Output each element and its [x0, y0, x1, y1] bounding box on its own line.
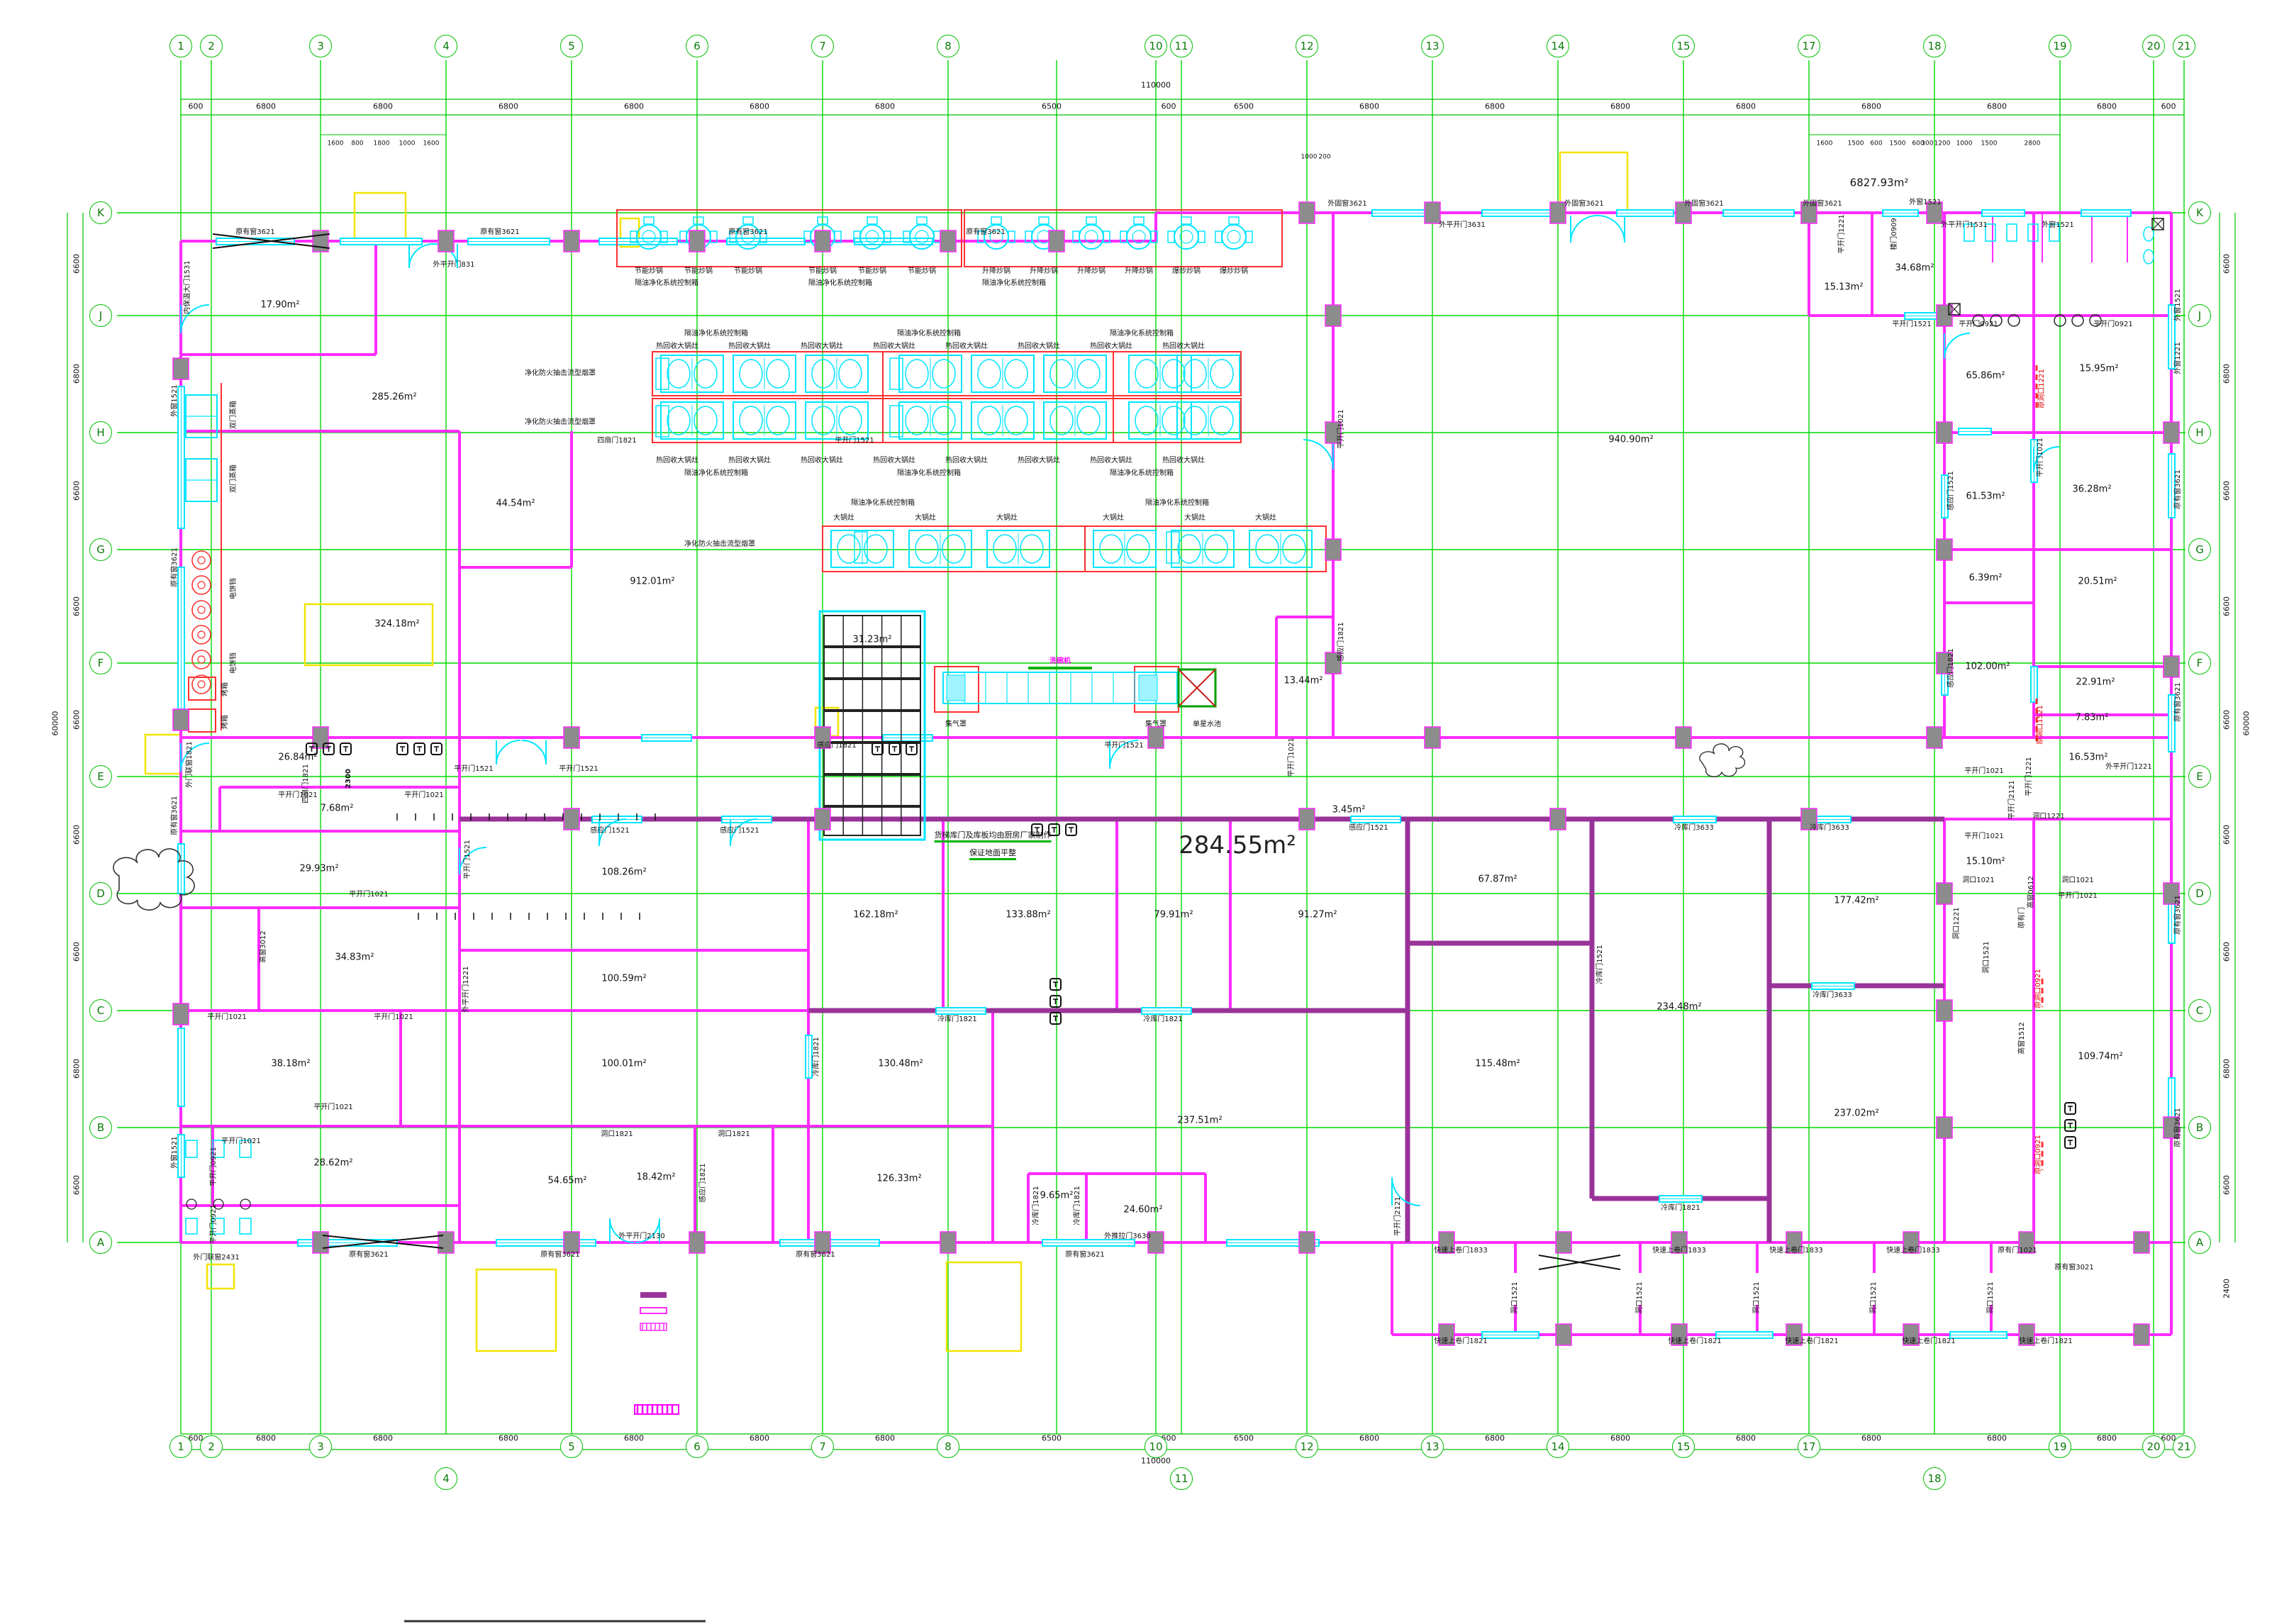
equipment-label: 隔油净化系统控制箱 [1110, 470, 1174, 477]
dim-label: 6800 [2223, 1059, 2231, 1079]
door-window-label: 冷库门1821 [1661, 1205, 1700, 1212]
door-window-label: 平开门1521 [559, 766, 598, 773]
dim-label: 1600 [423, 141, 440, 148]
dim-label: 6600 [2223, 596, 2231, 616]
equipment-label: 双门蒸箱 [230, 401, 238, 429]
grid-bubble: C [89, 999, 112, 1022]
door-window-label: 原有窗3021 [2054, 1264, 2093, 1272]
dim-label: 6800 [750, 103, 769, 111]
equipment-label: 热回收大锅灶 [1162, 457, 1205, 465]
door-window-label: 洞口1521 [1988, 1281, 1995, 1313]
room-area-label: 6.39m² [1969, 574, 2003, 583]
door-window-label: 平开门1521 [464, 840, 472, 879]
dim-label: 6800 [1861, 1435, 1881, 1442]
door-window-label: 外固窗3621 [1327, 201, 1366, 208]
dim-label: 6600 [73, 825, 81, 845]
room-area-label: 162.18m² [853, 911, 898, 920]
room-area-label: 15.95m² [2079, 365, 2118, 374]
door-window-label: 平开门1521 [1104, 743, 1143, 750]
equipment-label: 节能炒锅 [808, 268, 837, 275]
room-area-label: 130.48m² [878, 1060, 923, 1069]
grid-bubble: 3 [309, 35, 332, 57]
door-window-label: 原有窗3621 [480, 229, 519, 236]
door-window-label: 高窗3012 [260, 930, 267, 962]
door-window-label: 平开门1021 [374, 1014, 413, 1021]
room-area-label: 177.42m² [1834, 896, 1878, 906]
room-area-label: 9.65m² [1040, 1191, 1074, 1201]
door-window-label: 外窗1521 [2175, 289, 2182, 321]
room-area-label: 28.62m² [313, 1159, 352, 1168]
door-window-label: 平开门0921 [211, 1147, 218, 1186]
dim-label: 600 [1162, 103, 1176, 111]
door-window-label: 平开门1521 [1892, 321, 1931, 328]
grid-bubble: 2 [200, 35, 223, 57]
room-area-label: 912.01m² [630, 577, 674, 586]
door-window-label: 平开门1021 [1338, 409, 1345, 448]
room-area-label: 34.83m² [335, 953, 374, 962]
door-window-label: 感应门1521 [590, 828, 629, 835]
room-area-label: 15.10m² [1966, 857, 2005, 867]
grid-bubble: 14 [1547, 1435, 1569, 1458]
equipment-label: 热回收大锅灶 [728, 457, 771, 465]
door-window-label: 外门联窗2431 [193, 1255, 239, 1262]
room-area-label: 234.48m² [1656, 1003, 1701, 1012]
grid-bubble: 5 [560, 35, 583, 57]
kitchen-note-line1: 货梯库门及库板均由厨房厂家制作 [935, 831, 1052, 842]
door-window-label: 高窗0612 [2028, 876, 2035, 908]
room-area-label: 237.51m² [1177, 1116, 1222, 1125]
door-window-label: 平开门1021 [278, 792, 317, 799]
room-area-label: 61.53m² [1966, 492, 2005, 501]
door-window-label: 外窗1521 [172, 1136, 179, 1168]
door-window-label: 平开门1021 [349, 891, 388, 899]
door-window-label: 平开门0921 [1959, 321, 1998, 328]
dim-label: 6800 [1485, 103, 1505, 111]
equipment-label: 升降炒锅 [982, 268, 1010, 275]
grid-bubble: 8 [937, 1435, 959, 1458]
door-window-label: 洞口1521 [1754, 1281, 1761, 1313]
floorplan-canvas: 284.55m² 6827.93m² 货梯库门及库板均由厨房厂家制作 保证地面平… [0, 0, 2272, 1624]
door-window-label: 快速上卷门1821 [2019, 1338, 2072, 1345]
grid-bubble: 19 [2049, 1435, 2071, 1458]
grid-bubble: 11 [1170, 35, 1193, 57]
door-window-label: 原有窗3621 [2175, 895, 2182, 934]
door-window-label: 洞口1821 [601, 1131, 633, 1138]
room-area-label: 34.68m² [1895, 264, 1934, 273]
equipment-label: 升降炒锅 [1125, 268, 1153, 275]
dim-label: 6800 [373, 103, 393, 111]
door-window-label: 原有窗3621 [235, 229, 274, 236]
grid-bubble: 2 [200, 1435, 223, 1458]
kitchen-note-line2: 保证地面平整 [969, 849, 1016, 860]
dim-label: 6800 [1861, 103, 1881, 111]
grid-bubble: 17 [1798, 1435, 1820, 1458]
door-window-label: 原有窗3621 [2175, 682, 2182, 721]
door-window-label: 外固窗3621 [1684, 201, 1723, 208]
dim-label: 6600 [2223, 481, 2231, 501]
dim-label: 1200 [1934, 141, 1951, 148]
equipment-label: 隔油净化系统控制箱 [897, 330, 961, 338]
dim-label: 6800 [1610, 1435, 1630, 1442]
door-window-label: 外平开门3631 [1439, 222, 1485, 229]
room-area-label: 67.87m² [1478, 875, 1517, 884]
equipment-label: 爆炒炒锅 [1172, 268, 1201, 275]
room-area-label: 115.48m² [1475, 1060, 1520, 1069]
equipment-label: 大锅灶 [1184, 515, 1205, 522]
room-area-label: 79.91m² [1154, 911, 1193, 920]
door-window-label: 冷库门3633 [1810, 825, 1849, 832]
room-area-label: 22.91m² [2076, 678, 2115, 687]
corridor-dim: 2300 [345, 769, 352, 789]
room-area-label: 31.23m² [852, 635, 891, 645]
equipment-label: 热回收大锅灶 [945, 343, 988, 350]
dim-label: 600 [1870, 141, 1882, 148]
room-area-label: 940.90m² [1608, 435, 1653, 445]
dim-label: 6600 [2223, 710, 2231, 730]
equipment-label: 隔油净化系统控制箱 [635, 280, 698, 287]
room-area-label: 7.83m² [2076, 713, 2109, 723]
equipment-label: 热回收大锅灶 [873, 343, 915, 350]
equipment-label: 烤箱 [222, 715, 229, 729]
room-area-label: 36.28m² [2072, 485, 2111, 494]
dim-label: 600 [2161, 103, 2176, 111]
equipment-label: 电饼铛 [230, 578, 238, 599]
grid-bubble: H [2188, 421, 2211, 444]
dim-label: 6500 [1042, 1435, 1062, 1442]
grid-bubble: D [89, 882, 112, 905]
dim-label: 6800 [2097, 103, 2117, 111]
equipment-label: 隔油净化系统控制箱 [851, 500, 915, 507]
equipment-label: 节能炒锅 [908, 268, 936, 275]
door-window-label: 平开门1021 [221, 1138, 260, 1145]
equipment-label: 大锅灶 [1103, 515, 1124, 522]
equipment-label: 隔油净化系统控制箱 [1145, 500, 1209, 507]
dim-label: 6800 [1987, 103, 2007, 111]
grid-bubble: G [2188, 538, 2211, 561]
room-area-label: 15.13m² [1824, 283, 1863, 292]
room-area-label: 102.00m² [1965, 662, 2010, 672]
door-window-label: 洞口1521 [1512, 1281, 1519, 1313]
dim-label: 6800 [373, 1435, 393, 1442]
equipment-label: 爆炒炒锅 [1220, 268, 1248, 275]
door-window-label: 平开门1021 [1964, 833, 2003, 840]
equipment-label: 单星水池 [1193, 721, 1221, 728]
grid-bubble: J [2188, 304, 2211, 327]
door-window-label: 外固窗3621 [1564, 201, 1603, 208]
door-window-label: 平开门0921 [211, 1204, 218, 1243]
room-area-label: 133.88m² [1006, 911, 1050, 920]
grid-bubble: D [2188, 882, 2211, 905]
dim-label: 300 [1921, 141, 1933, 148]
door-window-label: 外平开门1221 [463, 966, 470, 1012]
room-area-label: 91.27m² [1298, 911, 1337, 920]
dim-label: 6600 [2223, 942, 2231, 962]
door-window-label: 原有窗3621 [728, 229, 767, 236]
room-area-label: 7.68m² [321, 804, 354, 813]
grid-bubble: 4 [435, 1467, 457, 1490]
dim-label: 1000 [1301, 155, 1318, 161]
door-window-label: 外门联窗1821 [186, 741, 194, 787]
room-area-label: 29.93m² [299, 864, 338, 874]
equipment-label: 热回收大锅灶 [1018, 343, 1060, 350]
dim-label: 6800 [875, 1435, 895, 1442]
dim-label: 1000 [399, 141, 416, 148]
dim-label: 6500 [1042, 103, 1062, 111]
door-window-label: 快速上卷门1833 [1652, 1247, 1705, 1255]
door-window-label: 平开门1521 [454, 766, 493, 773]
grid-bubble: 13 [1421, 1435, 1444, 1458]
equipment-label: 热回收大锅灶 [801, 343, 843, 350]
grid-bubble: 1 [169, 1435, 192, 1458]
dim-label: 6600 [2223, 1175, 2231, 1195]
dim-label: 6800 [1736, 103, 1756, 111]
dim-label: 6800 [1359, 1435, 1379, 1442]
door-window-label: 四扇门1821 [597, 438, 636, 445]
door-window-label: 洞口1221 [1954, 907, 1961, 939]
equipment-label: 热回收大锅灶 [656, 457, 698, 465]
grid-bubble: J [89, 304, 112, 327]
dim-label: 6800 [256, 1435, 276, 1442]
equipment-label: 隔油净化系统控制箱 [684, 470, 748, 477]
dim-label: 2400 [2223, 1279, 2231, 1298]
door-window-label: 原洞口1221 [2039, 369, 2046, 408]
walls [181, 213, 2171, 1335]
grid-bubble: K [2188, 201, 2211, 224]
door-window-label: 外窗1521 [172, 384, 179, 416]
grid-bubble: 12 [1296, 1435, 1318, 1458]
dim-label: 1000 [1956, 141, 1973, 148]
grid-bubble: 1 [169, 35, 192, 57]
grid-bubble: 7 [811, 1435, 834, 1458]
grid-bubble: F [89, 652, 112, 674]
room-area-label: 13.44m² [1283, 677, 1322, 686]
door-window-label: 冷库门1821 [1033, 1186, 1040, 1225]
dim-label: 6600 [73, 254, 81, 274]
grid-bubble: 21 [2173, 35, 2195, 57]
door-window-label: 原有窗3621 [1065, 1252, 1104, 1259]
dim-label: 6600 [2223, 825, 2231, 845]
overall-dim-bottom: 110000 [1141, 1457, 1171, 1465]
door-window-label: 原有窗3621 [796, 1252, 835, 1259]
dim-label: 6600 [73, 942, 81, 962]
dim-label: 6800 [2223, 364, 2231, 384]
grid-bubble: 17 [1798, 35, 1820, 57]
door-window-label: 平开门0921 [2093, 321, 2132, 328]
equipment-label: 大锅灶 [833, 515, 854, 522]
dim-label: 6800 [1359, 103, 1379, 111]
equipment-label: 热回收大锅灶 [1090, 457, 1132, 465]
door-window-label: 原有窗3621 [2175, 469, 2182, 508]
door-window-label: 外窗1521 [1909, 199, 1941, 206]
room-area-label: 100.59m² [601, 974, 646, 984]
main-area-label: 284.55m² [1179, 833, 1296, 857]
grid-bubble: 8 [937, 35, 959, 57]
grid-bubble: 13 [1421, 35, 1444, 57]
equipment-label: 节能炒锅 [858, 268, 886, 275]
room-area-label: 54.65m² [547, 1177, 586, 1186]
door-window-label: 冷库门1821 [937, 1016, 976, 1023]
door-window-label: 快速上卷门1821 [1785, 1338, 1838, 1345]
door-window-label: 外窗1521 [2042, 222, 2073, 229]
door-window-label: 平开门2121 [2009, 780, 2016, 819]
grid-bubble: 11 [1170, 1467, 1193, 1490]
equipment-label: 净化防火抽击流型烟罩 [525, 419, 596, 426]
door-window-label: 冷库门1821 [813, 1037, 820, 1076]
grid-bubble: H [89, 421, 112, 444]
grid-bubble: 3 [309, 1435, 332, 1458]
door-window-label: 原有窗3621 [172, 796, 179, 835]
grid-bubble: 5 [560, 1435, 583, 1458]
door-window-label: 平开门1021 [2058, 893, 2097, 900]
door-window-label: 原有门1021 [1998, 1247, 2037, 1255]
door-window-label: 感应门1521 [1349, 825, 1388, 832]
room-area-label: 65.86m² [1966, 372, 2005, 381]
equipment-label: 热回收大锅灶 [945, 457, 988, 465]
equipment-label: 热回收大锅灶 [656, 343, 698, 350]
door-window-label: 冷库门3633 [1812, 992, 1851, 999]
grid-bubble: 6 [686, 1435, 708, 1458]
dim-label: 2800 [2025, 141, 2041, 148]
door-window-label: 内保温大门1531 [184, 260, 191, 313]
door-window-label: 快速上卷门1821 [1668, 1338, 1721, 1345]
overall-dim-left: 60000 [52, 711, 60, 736]
grid-bubble: E [2188, 765, 2211, 788]
equipment-label: 热回收大锅灶 [801, 457, 843, 465]
hood-outlines [189, 210, 2042, 1170]
door-window-label: 外平开门1531 [1941, 222, 1987, 229]
dim-label: 6800 [1736, 1435, 1756, 1442]
equipment-label: 净化防火抽击流型烟罩 [684, 541, 755, 548]
equipment-label: 热回收大锅灶 [873, 457, 915, 465]
grid-bubble: G [89, 538, 112, 561]
door-window-label: 平开门1021 [404, 792, 443, 799]
room-area-label: 18.42m² [636, 1173, 675, 1182]
equipment-label: 热回收大锅灶 [1162, 343, 1205, 350]
total-area-label: 6827.93m² [1850, 178, 1909, 189]
dim-label: 6800 [499, 1435, 518, 1442]
equipment-label: 隔油净化系统控制箱 [897, 470, 961, 477]
door-window-label: 快速上卷门1833 [1886, 1247, 1939, 1255]
room-area-label: 16.53m² [2068, 753, 2107, 762]
door-window-label: 原有门 [2019, 907, 2026, 928]
door-window-label: 外固窗3621 [1803, 201, 1842, 208]
room-area-label: 100.01m² [601, 1060, 646, 1069]
door-window-label: 感应门1521 [1948, 471, 1955, 510]
door-window-label: 楼门0909 [1891, 218, 1898, 250]
door-window-label: 原有窗3621 [172, 547, 179, 586]
dim-label: 6800 [73, 1059, 81, 1079]
equipment-label: 隔油净化系统控制箱 [982, 280, 1046, 287]
room-area-label: 324.18m² [374, 620, 419, 629]
room-area-label: 3.45m² [1332, 806, 1366, 815]
grid-bubble: 19 [2049, 35, 2071, 57]
grid-bubble: C [2188, 999, 2211, 1022]
door-window-label: 感应门1521 [720, 828, 759, 835]
door-window-label: 原洞口0921 [2035, 969, 2042, 1008]
dim-label: 200 [1318, 155, 1330, 161]
grid-bubble: 21 [2173, 1435, 2195, 1458]
dim-label: 6500 [1234, 103, 1254, 111]
door-window-label: 平开门1021 [313, 1104, 352, 1111]
door-window-label: 外平开门1221 [2105, 764, 2151, 771]
equipment-label: 节能炒锅 [684, 268, 713, 275]
dim-label: 6800 [256, 103, 276, 111]
dim-label: 6600 [2223, 254, 2231, 274]
grid-bubble: B [2188, 1116, 2211, 1139]
equipment-label: 大锅灶 [1255, 515, 1276, 522]
grid-bubble: B [89, 1116, 112, 1139]
dim-label: 800 [351, 141, 363, 148]
dim-label: 6800 [499, 103, 518, 111]
dim-label: 1500 [1848, 141, 1864, 148]
grid-bubble: 20 [2142, 1435, 2165, 1458]
equipment-label: 热回收大锅灶 [728, 343, 771, 350]
room-area-label: 285.26m² [372, 393, 416, 402]
door-window-label: 洞口1221 [2032, 813, 2064, 821]
dim-label: 6600 [73, 710, 81, 730]
door-window-label: 平开门1021 [1964, 768, 2003, 775]
dim-label: 6800 [750, 1435, 769, 1442]
grid-bubble: A [89, 1231, 112, 1254]
grid-bubble: 12 [1296, 35, 1318, 57]
dim-label: 6600 [73, 1175, 81, 1195]
equipment-label: 升降炒锅 [1030, 268, 1058, 275]
door-window-label: 平开门1021 [207, 1014, 246, 1021]
dim-label: 6500 [1234, 1435, 1254, 1442]
door-window-label: 平开门1221 [1839, 214, 1846, 253]
grid-bubble: 10 [1145, 35, 1167, 57]
door-window-label: 感应门1821 [1948, 648, 1955, 687]
door-window-label: 原有窗3621 [540, 1252, 579, 1259]
door-window-label: 洞口1821 [718, 1131, 750, 1138]
equipment-label: 节能炒锅 [734, 268, 762, 275]
door-window-label: 外平开门831 [433, 262, 474, 269]
door-window-label: 洞口1521 [1871, 1281, 1878, 1313]
grid-bubble: 6 [686, 35, 708, 57]
equipment-label: 集气罩 [1145, 721, 1166, 728]
grid-bubble: 14 [1547, 35, 1569, 57]
door-window-label: 原有窗3621 [349, 1252, 388, 1259]
door-window-label: 洞口1521 [1637, 1281, 1644, 1313]
dim-label: 1500 [1890, 141, 1906, 148]
room-area-label: 108.26m² [601, 868, 646, 877]
room-area-label: 38.18m² [271, 1060, 310, 1069]
door-window-label: 洞口1021 [2061, 877, 2093, 884]
door-window-label: 平开门1521 [835, 438, 874, 445]
door-window-label: 冷库门1821 [1143, 1016, 1182, 1023]
room-area-label: 109.74m² [2078, 1052, 2122, 1062]
grid-bubble: 10 [1145, 1435, 1167, 1458]
dim-label: 6800 [1485, 1435, 1505, 1442]
dim-label: 1800 [374, 141, 390, 148]
room-area-label: 126.33m² [876, 1174, 921, 1184]
grid-bubble: 4 [435, 35, 457, 57]
equipment-label: 电饼铛 [230, 652, 238, 674]
door-window-label: 快速上卷门1821 [1902, 1338, 1955, 1345]
dim-label: 1500 [1981, 141, 1998, 148]
door-window-label: 原洞口0921 [2035, 1135, 2042, 1174]
grid-bubble: 20 [2142, 35, 2165, 57]
dim-label: 6800 [2097, 1435, 2117, 1442]
dim-label: 6600 [73, 481, 81, 501]
grid-bubble: 18 [1923, 35, 1946, 57]
equipment-label: 大锅灶 [915, 515, 936, 522]
dim-label: 6800 [1987, 1435, 2007, 1442]
equipment-label: 烤箱 [222, 682, 229, 696]
room-area-label: 20.51m² [2078, 577, 2117, 586]
door-window-label: 洞口1021 [1962, 877, 1994, 884]
equipment-label: 节能炒锅 [635, 268, 663, 275]
